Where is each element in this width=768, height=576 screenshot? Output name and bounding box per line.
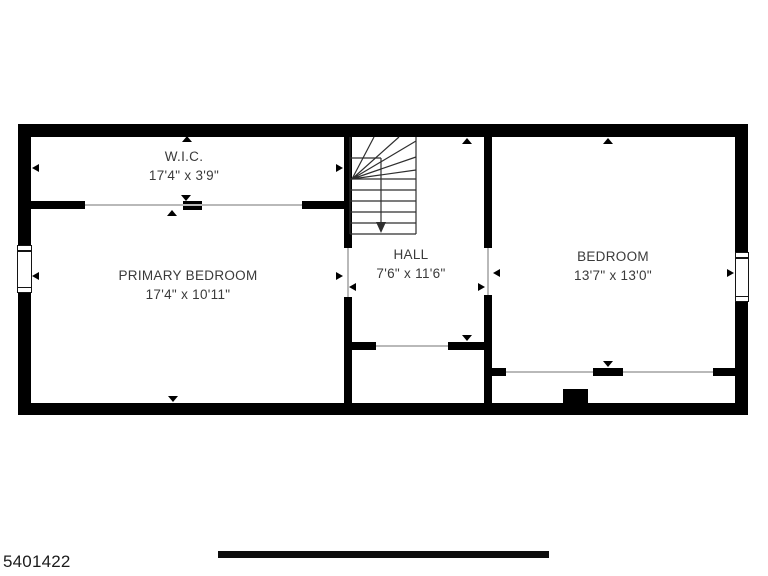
room-dimensions: 17'4" x 10'11" [68, 285, 308, 304]
dimension-arrow [349, 283, 356, 291]
listing-id: 5401422 [3, 552, 71, 572]
room-name: PRIMARY BEDROOM [68, 266, 308, 285]
scale-bar [218, 551, 549, 558]
floor-plan: W.I.C. 17'4" x 3'9" PRIMARY BEDROOM 17'4… [0, 0, 768, 576]
room-name: W.I.C. [84, 147, 284, 166]
room-name: BEDROOM [523, 247, 703, 266]
dimension-arrow [168, 396, 178, 402]
room-label-bedroom: BEDROOM 13'7" x 13'0" [523, 247, 703, 285]
dimension-arrow [462, 138, 472, 144]
dimension-arrow [181, 195, 191, 201]
dimension-arrow [336, 164, 343, 172]
dimension-arrow [32, 164, 39, 172]
dimension-arrow [493, 269, 500, 277]
dimension-arrow [603, 361, 613, 367]
dimension-arrow [727, 269, 734, 277]
room-label-wic: W.I.C. 17'4" x 3'9" [84, 147, 284, 185]
room-label-primary-bedroom: PRIMARY BEDROOM 17'4" x 10'11" [68, 266, 308, 304]
room-name: HALL [331, 245, 491, 264]
stair-down-arrow-icon [376, 222, 386, 233]
room-dimensions: 13'7" x 13'0" [523, 266, 703, 285]
dimension-arrow [167, 210, 177, 216]
dimension-arrow [603, 138, 613, 144]
dimension-arrow [182, 136, 192, 142]
dimension-arrow [462, 335, 472, 341]
room-label-hall: HALL 7'6" x 11'6" [331, 245, 491, 283]
room-dimensions: 7'6" x 11'6" [331, 264, 491, 283]
dimension-arrow [478, 283, 485, 291]
dimension-arrow [32, 272, 39, 280]
room-dimensions: 17'4" x 3'9" [84, 166, 284, 185]
